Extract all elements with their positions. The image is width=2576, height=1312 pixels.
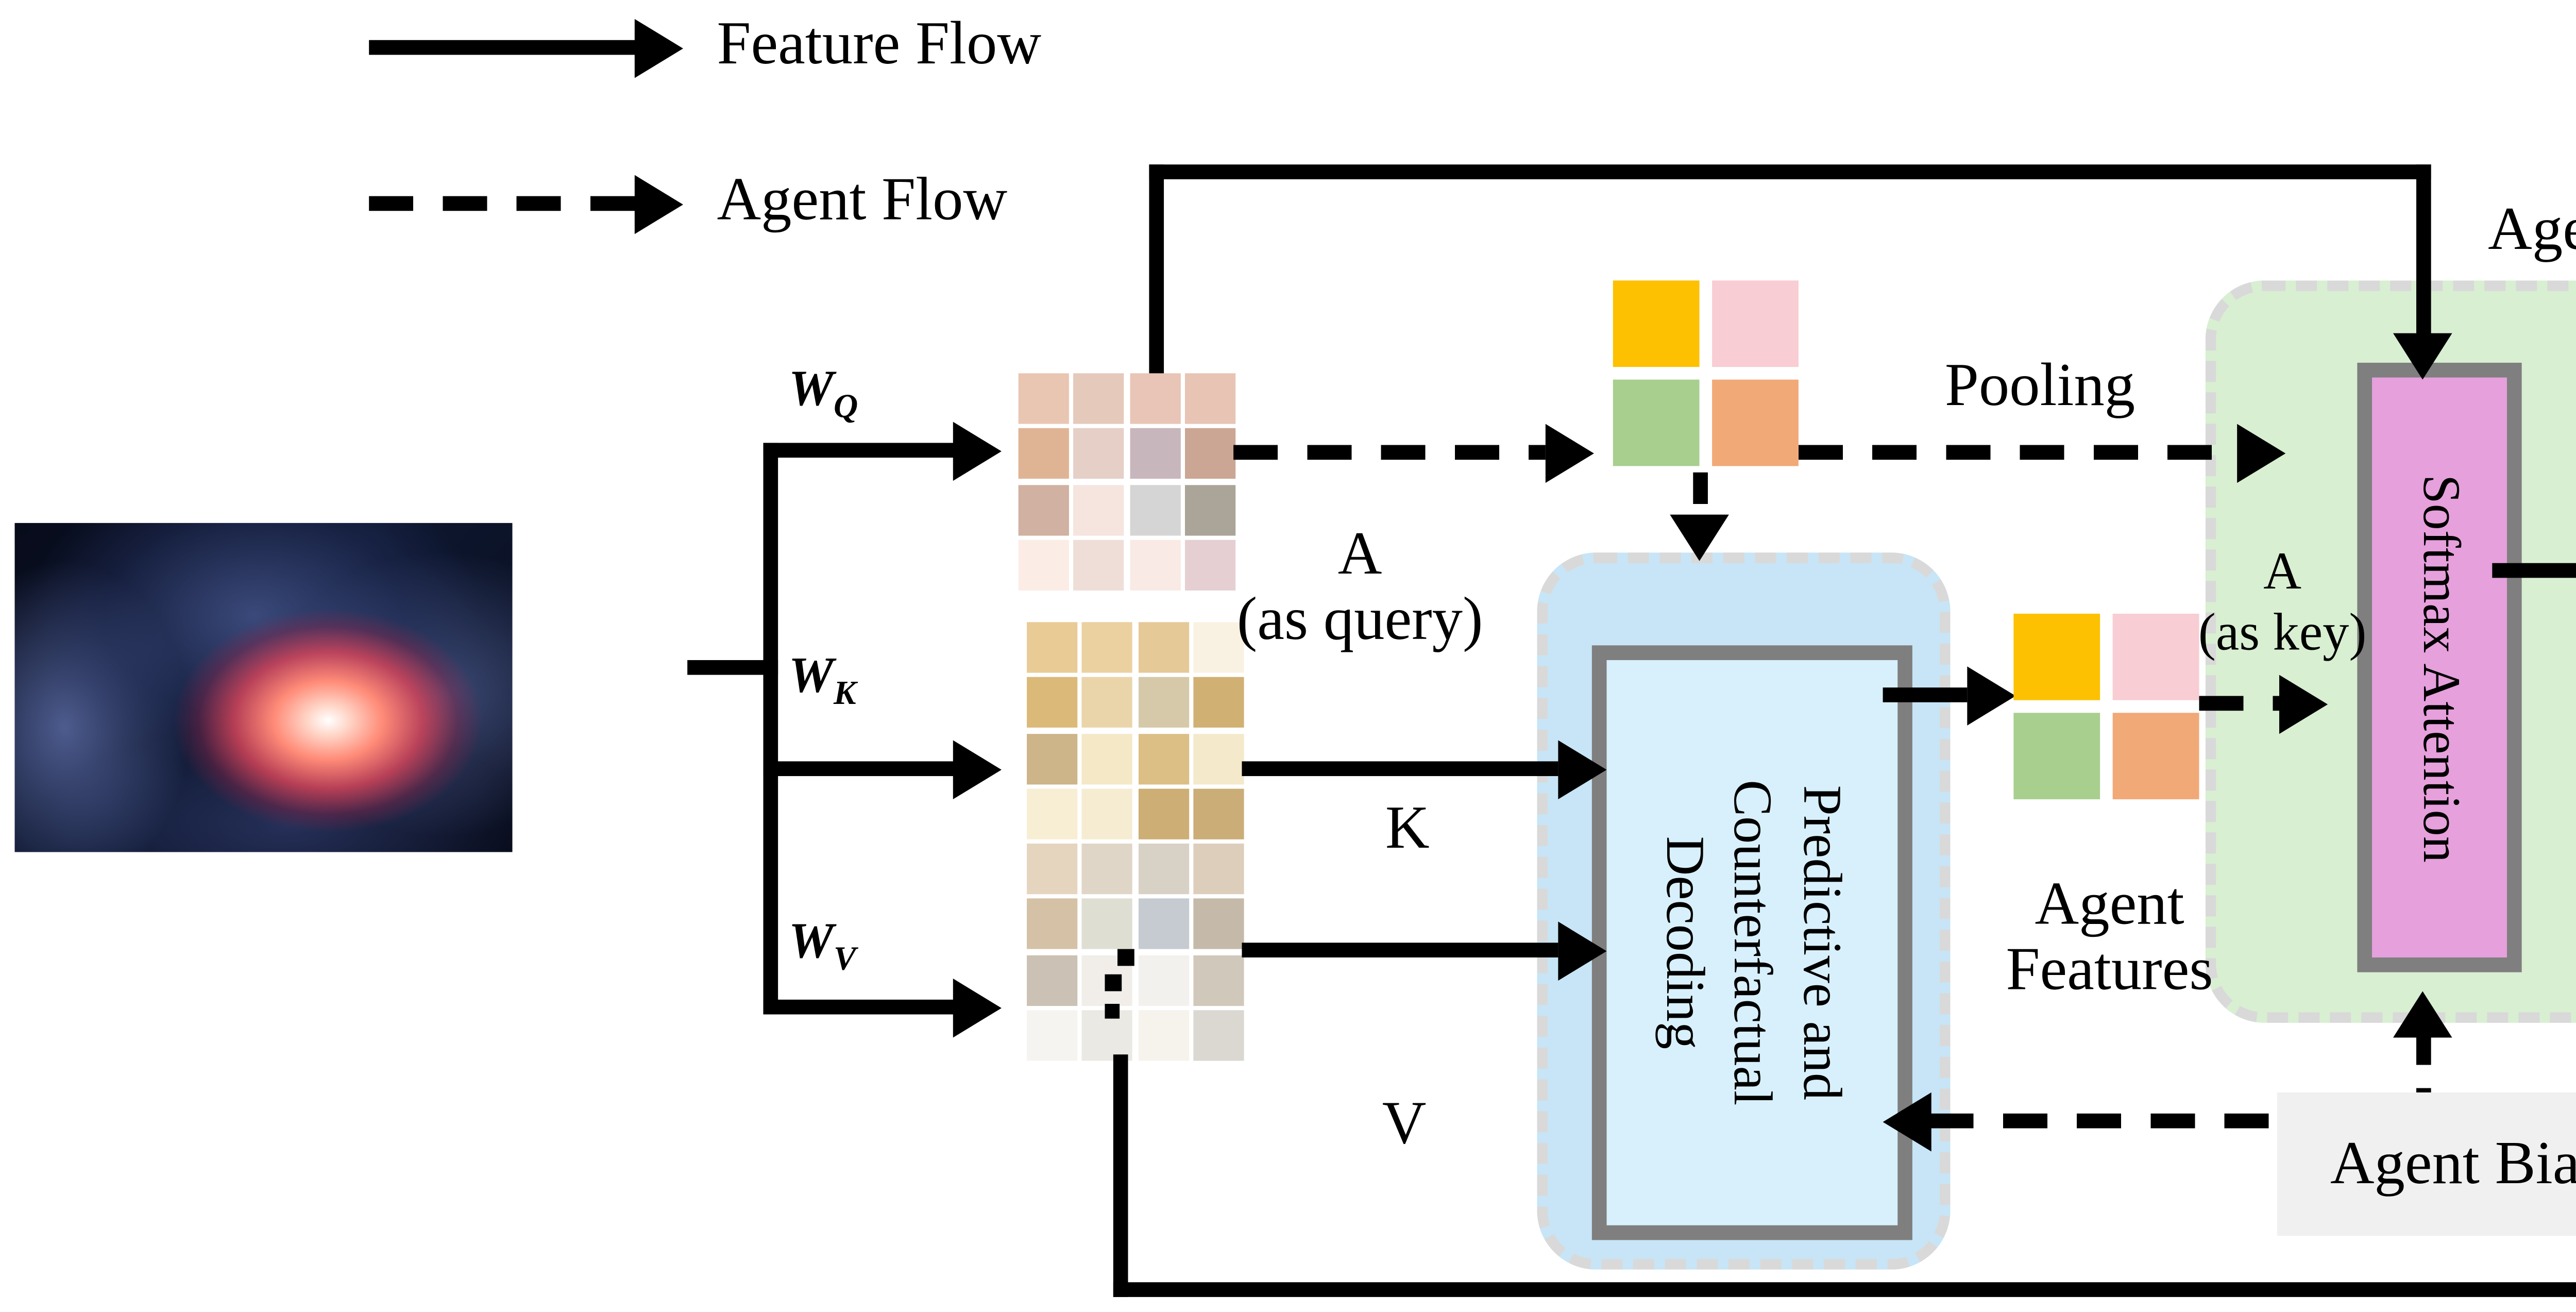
grid-cell (1613, 380, 1700, 466)
pool-to-decoding-arrowhead-icon (1670, 515, 1729, 561)
grid-cell (1613, 280, 1700, 367)
q-to-pool-dashed-line (1233, 445, 1546, 460)
value-feature-grid (1027, 844, 1244, 1061)
agent-to-softmax-dashed-line (2199, 696, 2279, 711)
grid-cell (1027, 844, 1077, 894)
wv-label: WV (789, 915, 856, 980)
grid-cell (1019, 484, 1069, 535)
wv-branch-line (763, 1000, 957, 1015)
grid-cell (1194, 1011, 1244, 1061)
grid-cell (1185, 429, 1236, 479)
grid-cell (1194, 789, 1244, 839)
grid-cell (1074, 373, 1125, 424)
legend-agent-arrowhead-icon (635, 175, 683, 234)
grid-cell (1194, 955, 1244, 1005)
grid-cell (1082, 899, 1133, 950)
grid-cell (1019, 429, 1069, 479)
agent-tokens-label: Agent Tokens (2488, 198, 2576, 264)
softmax-attention-label: Softmax Attention (2406, 398, 2472, 936)
qkv-trunk-line (763, 443, 778, 1014)
v-skip-drop-line (1113, 1054, 1128, 1297)
grid-cell (1130, 429, 1180, 479)
grid-cell (1019, 373, 1069, 424)
grid-cell (1082, 789, 1133, 839)
pool-to-softmax-dashed-line (1799, 445, 2237, 460)
grid-cell (1712, 280, 1799, 367)
ellipsis-dot (1117, 949, 1134, 966)
breast-scan-image (15, 523, 513, 852)
grid-cell (1712, 380, 1799, 466)
grid-cell (1082, 622, 1133, 672)
wk-label: WK (789, 649, 856, 714)
wq-branch-line (763, 443, 957, 458)
grid-cell (1130, 484, 1180, 535)
grid-cell (1138, 789, 1189, 839)
architecture-diagram: Feature Flow Agent Flow Predictive and C… (0, 0, 2576, 1312)
grid-cell (1194, 678, 1244, 728)
softmax-top-arrowhead-icon (2393, 333, 2452, 380)
bias-to-decoding-dashed-line (1929, 1114, 2277, 1129)
grid-cell (1185, 373, 1236, 424)
softmax-drop-line (2416, 164, 2431, 338)
agent-to-softmax-arrowhead-icon (2279, 675, 2328, 734)
legend-agent-flow-line (369, 196, 639, 211)
grid-cell (2013, 713, 2100, 799)
grid-cell (1138, 1011, 1189, 1061)
v-skip-bottom-line (1113, 1282, 2576, 1297)
v-to-decoding-arrowhead-icon (1558, 921, 1606, 981)
grid-cell (2013, 614, 2100, 700)
pool-to-decoding-dashed-line (1693, 473, 1708, 519)
grid-cell (1074, 484, 1125, 535)
a-as-query-label: A (as query) (1191, 523, 1529, 655)
grid-cell (1138, 733, 1189, 784)
predictive-counterfactual-decoding-label: Predictive and Counterfactual Decoding (1649, 747, 1855, 1139)
decoding-to-agent-arrowhead-icon (1967, 666, 2015, 726)
v-label: V (1341, 1092, 1468, 1158)
v-to-decoding-line (1242, 943, 1558, 957)
grid-cell (1130, 540, 1180, 591)
grid-cell (1027, 899, 1077, 950)
grid-cell (1027, 678, 1077, 728)
k-label: K (1349, 797, 1465, 863)
grid-cell (1027, 955, 1077, 1005)
k-to-decoding-arrowhead-icon (1558, 740, 1606, 799)
grid-cell (1194, 733, 1244, 784)
agent-features-label: Agent Features (1978, 873, 2242, 1005)
grid-cell (1138, 899, 1189, 950)
agent-features-grid (2013, 614, 2199, 799)
wk-arrowhead-icon (953, 740, 1002, 799)
top-feature-line (1149, 164, 2431, 179)
grid-cell (1194, 899, 1244, 950)
predictive-counterfactual-decoding-box: Predictive and Counterfactual Decoding (1592, 645, 1912, 1240)
wq-arrowhead-icon (953, 422, 1002, 481)
bias-to-softmax-dashed-line (2416, 1033, 2431, 1092)
ellipsis-dot (1105, 974, 1122, 991)
grid-cell (1074, 540, 1125, 591)
legend-agent-flow-label: Agent Flow (717, 169, 1007, 234)
pooled-token-grid (1613, 280, 1799, 466)
legend-feature-flow-line (369, 40, 639, 55)
wk-branch-line (763, 761, 957, 776)
ellipsis-dot (1105, 1004, 1120, 1019)
bias-to-decoding-arrowhead-icon (1883, 1092, 1931, 1152)
agent-bias-label: Agent Bias (2330, 1130, 2576, 1199)
grid-cell (1027, 622, 1077, 672)
grid-cell (2113, 713, 2199, 799)
bias-to-softmax-arrowhead-icon (2393, 991, 2452, 1037)
legend-feature-arrowhead-icon (635, 19, 683, 78)
wv-arrowhead-icon (953, 979, 1002, 1038)
grid-cell (1027, 1011, 1077, 1061)
pooling-label: Pooling (1897, 355, 2182, 420)
pool-to-softmax-arrowhead-icon (2237, 424, 2285, 483)
grid-cell (1138, 844, 1189, 894)
grid-cell (1130, 373, 1180, 424)
a-as-key-label: A (as key) (2182, 544, 2383, 665)
grid-cell (1138, 955, 1189, 1005)
grid-cell (1194, 844, 1244, 894)
agent-bias-box: Agent Bias (2277, 1092, 2576, 1236)
grid-cell (1027, 789, 1077, 839)
grid-cell (1027, 733, 1077, 784)
softmax-attention-box: Softmax Attention (2357, 363, 2521, 972)
decoding-to-agent-line (1883, 687, 1968, 702)
grid-cell (1082, 844, 1133, 894)
softmax-output-line (2492, 563, 2576, 578)
grid-cell (1082, 678, 1133, 728)
q-top-riser-line (1149, 164, 1164, 373)
q-to-pool-arrowhead-icon (1546, 424, 1594, 483)
grid-cell (1082, 733, 1133, 784)
grid-cell (1138, 678, 1189, 728)
k-to-decoding-line (1242, 761, 1558, 776)
grid-cell (1019, 540, 1069, 591)
legend-feature-flow-label: Feature Flow (717, 13, 1041, 79)
grid-cell (1138, 622, 1189, 672)
grid-cell (1074, 429, 1125, 479)
wq-label: WQ (789, 363, 858, 428)
